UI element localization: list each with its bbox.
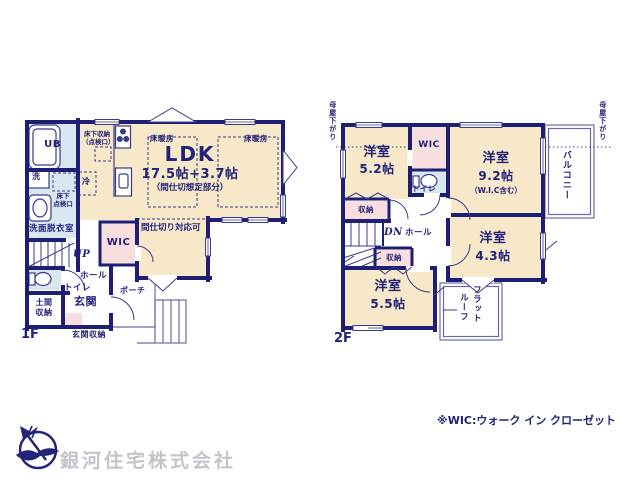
burner xyxy=(121,129,126,134)
toilet-label-2f: トイレ xyxy=(412,184,436,193)
closet-a-label: 収納 xyxy=(351,205,381,214)
ldk-note: （間仕切想定部分） xyxy=(138,183,242,194)
moya-sagari-label-right: 母屋下がり xyxy=(598,101,606,141)
genkan-label: 玄関 xyxy=(74,295,97,309)
bedroom-5-5-name: 洋室 xyxy=(357,279,419,295)
closet-b-label: 収納 xyxy=(381,253,407,262)
bedroom-5-2-name: 洋室 xyxy=(351,145,403,161)
underfloor-storage-label: 床下収納 （点検口） xyxy=(82,130,112,146)
floor2-tag: 2F xyxy=(334,331,352,346)
company-name: 銀河住宅株式会社 xyxy=(60,446,236,473)
stairs-dn-label: DN xyxy=(384,227,403,240)
fridge-label: 冷 xyxy=(82,177,91,187)
porch-label: ポーチ xyxy=(120,286,146,296)
bedroom-4-3-name: 洋室 xyxy=(462,231,524,247)
wic-label-2f: WIC xyxy=(410,140,448,151)
floor1-tag: 1F xyxy=(21,327,39,342)
bedroom-5-2-size: 5.2帖 xyxy=(351,162,403,177)
bedroom-9-2-name: 洋室 xyxy=(465,151,527,167)
bedroom-5-5-size: 5.5帖 xyxy=(357,297,419,312)
bedroom-4-3-size: 4.3帖 xyxy=(462,249,524,264)
stairs-1f-icon xyxy=(28,241,76,267)
washer-label: 洗 xyxy=(32,172,41,182)
roof-vent-mark xyxy=(148,108,196,122)
bay-window-mark xyxy=(283,150,297,185)
hall-label-2f: ホール xyxy=(405,228,432,239)
doma-storage-label: 土間 収納 xyxy=(31,298,57,318)
floorplan-drawing xyxy=(0,0,640,480)
partition-note-label: 間仕切り対応可 xyxy=(141,223,201,234)
washbasin-bowl xyxy=(33,199,47,217)
underfloor-inspection-label: 床下 点検口 xyxy=(49,192,77,208)
ldk-title: LDK xyxy=(150,142,230,167)
washroom-label: 洗面脱衣室 xyxy=(29,224,74,235)
ub-label: UB xyxy=(40,139,65,152)
burner xyxy=(124,137,129,142)
moya-sagari-label-left: 母屋下がり xyxy=(328,101,336,141)
ldk-size: 17.5帖+3.7帖 xyxy=(138,167,242,183)
wic-footnote: ※WIC:ウォーク イン クローゼット xyxy=(437,412,616,428)
toilet-bowl-1f xyxy=(35,273,51,286)
compass-logo xyxy=(16,426,59,468)
bedroom-9-2-note: （W.I.C含む） xyxy=(458,186,534,195)
floorplan-page: { "colors": { "wall_navy": "#1e1e74", "r… xyxy=(0,0,640,480)
genkan-storage-label: 玄関収納 xyxy=(72,330,106,340)
stairs-up-label: UP xyxy=(73,249,90,262)
flat-roof-label-1: フラット xyxy=(471,285,480,323)
burner xyxy=(117,137,122,142)
hall-label-1f: ホール xyxy=(80,271,107,282)
toilet-tank-1f xyxy=(29,273,35,285)
flat-roof-label-2: ルーフ xyxy=(458,293,467,322)
toilet-label-1f: トイレ xyxy=(64,283,91,294)
floor-heating-label-right: 床暖房 xyxy=(244,134,268,143)
balcony-label: バルコニー xyxy=(560,150,570,200)
bedroom-9-2-size: 9.2帖 xyxy=(465,169,527,184)
kitchen-sink-bowl xyxy=(119,174,128,188)
wic-label-1f: WIC xyxy=(102,237,135,250)
